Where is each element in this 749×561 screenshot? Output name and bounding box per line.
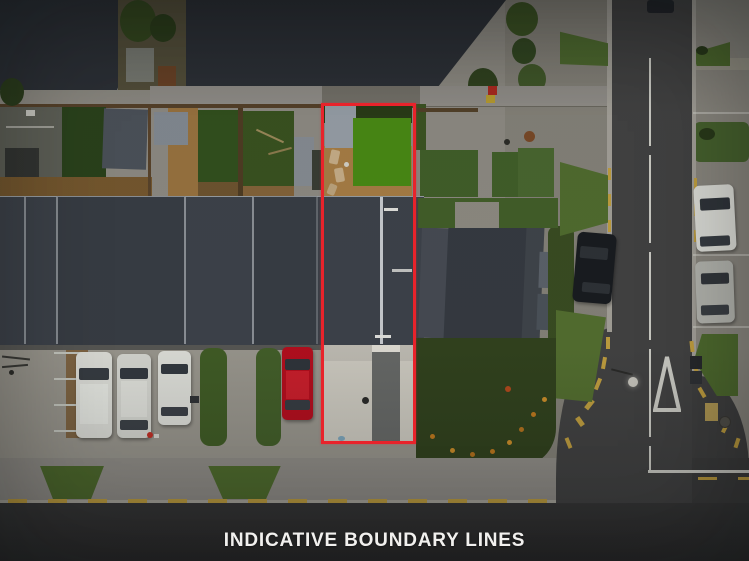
dark-car-top xyxy=(647,0,674,13)
white-item xyxy=(154,434,159,438)
dirt-patch xyxy=(198,182,238,196)
car-rear-window xyxy=(700,235,730,247)
roof-seam xyxy=(184,197,186,344)
bush xyxy=(696,46,708,55)
bush xyxy=(699,128,715,140)
give-way-triangle-marking xyxy=(653,354,681,414)
parking-bay-line xyxy=(693,112,749,114)
aerial-photo: INDICATIVE BOUNDARY LINES xyxy=(0,0,749,561)
car-rear-window xyxy=(161,407,188,416)
red-item xyxy=(147,432,153,438)
caption-text: INDICATIVE BOUNDARY LINES xyxy=(224,530,526,553)
flower xyxy=(450,448,455,453)
dark-dot xyxy=(9,370,14,375)
corner-garden xyxy=(416,338,556,468)
manhole-cover xyxy=(719,416,731,428)
tree xyxy=(506,2,538,36)
yellow-no-stopping-line xyxy=(608,168,611,238)
flower xyxy=(542,397,547,402)
house-roof-top-middle xyxy=(186,0,506,90)
yellow-dash xyxy=(606,337,610,349)
car-windshield xyxy=(701,273,729,285)
roof-seam xyxy=(56,197,58,344)
roof-seam xyxy=(252,197,254,344)
deck xyxy=(243,186,294,196)
flower xyxy=(531,412,536,417)
rusty-ring xyxy=(524,131,535,142)
yard-lawn xyxy=(62,107,106,177)
yellow-no-stopping-line xyxy=(8,499,556,503)
flower xyxy=(507,440,512,445)
car-windshield xyxy=(161,364,188,374)
front-grass xyxy=(420,150,478,197)
yard-lawn xyxy=(198,110,238,182)
roof-seam xyxy=(24,197,26,344)
end-unit-roof xyxy=(443,218,544,348)
roof-shade xyxy=(253,196,317,345)
car-rear-window xyxy=(701,305,729,316)
road-centre-line xyxy=(649,58,651,470)
car-windshield xyxy=(580,246,609,260)
car-rear-window xyxy=(120,420,148,430)
patio-furniture xyxy=(5,148,39,178)
roof-shade xyxy=(57,196,185,345)
car-roof xyxy=(286,371,309,399)
patio-item xyxy=(26,110,35,116)
garden-shed-roof xyxy=(102,108,148,169)
flower xyxy=(505,386,511,392)
boundary-line-overlay xyxy=(321,103,416,444)
van-windshield xyxy=(79,368,109,380)
fence xyxy=(148,107,151,196)
fence xyxy=(416,108,478,112)
rubbish-bin xyxy=(690,356,702,369)
garden-shed-roof xyxy=(154,112,188,145)
bush xyxy=(150,14,176,42)
flower xyxy=(430,434,435,439)
car-windshield xyxy=(120,368,148,379)
small-box xyxy=(190,396,199,403)
tree xyxy=(512,38,536,64)
clothesline xyxy=(6,126,54,128)
front-grass xyxy=(518,148,554,197)
parking-bay-line xyxy=(693,326,749,328)
vertical-road xyxy=(612,0,692,561)
red-bin xyxy=(488,86,497,95)
front-path xyxy=(455,202,499,228)
parking-bay-line xyxy=(693,254,749,256)
yellow-bin xyxy=(486,95,495,103)
car-roof xyxy=(121,381,147,417)
front-grass xyxy=(492,152,518,197)
rubbish-bin xyxy=(690,371,702,384)
hedge xyxy=(256,348,281,446)
black-car xyxy=(572,231,617,304)
deck xyxy=(0,177,152,196)
car-windshield xyxy=(700,197,731,211)
flower xyxy=(519,427,524,432)
van-roof xyxy=(80,384,108,424)
street-lamp xyxy=(628,377,638,387)
flower xyxy=(470,452,475,457)
small-shed-roof xyxy=(126,48,154,82)
roof-seam xyxy=(316,197,318,344)
road-edge-line xyxy=(648,470,749,473)
yellow-no-stopping-line xyxy=(698,477,749,480)
hedge xyxy=(200,348,227,446)
flower xyxy=(490,449,495,454)
foliage xyxy=(0,78,24,106)
pavement-above-boundary xyxy=(322,86,420,104)
car-windshield xyxy=(285,359,310,370)
car-rear-window xyxy=(285,400,310,410)
garden-shed-roof xyxy=(294,137,314,186)
dark-dot xyxy=(504,139,510,145)
utility-box xyxy=(705,403,718,421)
